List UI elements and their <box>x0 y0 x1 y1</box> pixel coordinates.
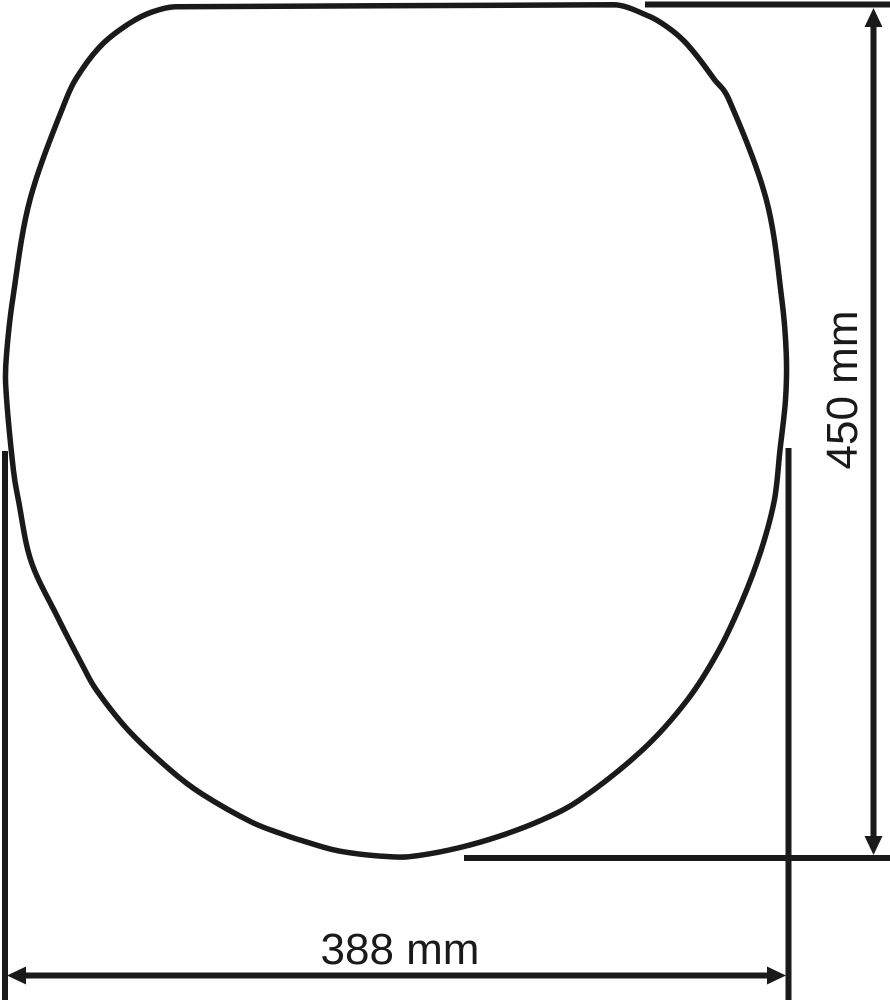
svg-text:388 mm: 388 mm <box>321 925 480 974</box>
svg-text:450 mm: 450 mm <box>818 311 867 470</box>
